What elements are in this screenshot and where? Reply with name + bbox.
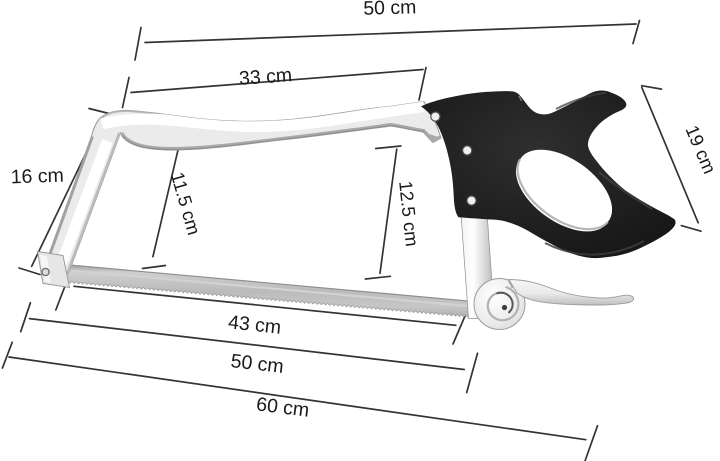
svg-text:50 cm: 50 cm xyxy=(363,0,417,20)
svg-text:16 cm: 16 cm xyxy=(10,165,64,189)
svg-text:33 cm: 33 cm xyxy=(238,64,293,90)
